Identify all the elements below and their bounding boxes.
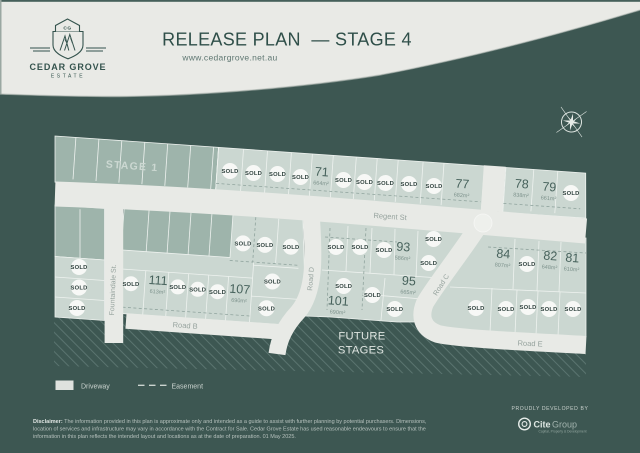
svg-text:Disclaimer: The information pr: Disclaimer: The information provided in … [33,419,427,425]
svg-text:690m²: 690m² [231,298,247,305]
svg-text:SOLD: SOLD [245,171,262,177]
svg-text:SOLD: SOLD [209,290,226,296]
svg-text:SOLD: SOLD [377,181,394,187]
svg-text:SOLD: SOLD [335,178,352,184]
svg-text:665m²: 665m² [400,289,416,296]
svg-text:95: 95 [401,274,416,289]
svg-text:SOLD: SOLD [386,307,403,313]
svg-text:STAGES: STAGES [338,345,384,357]
svg-text:Driveway: Driveway [81,384,110,391]
svg-text:82: 82 [543,249,558,264]
svg-text:SOLD: SOLD [376,248,393,254]
svg-text:93: 93 [396,240,411,255]
svg-text:807m²: 807m² [494,262,510,269]
svg-text:586m²: 586m² [394,255,410,262]
svg-text:SOLD: SOLD [122,282,139,288]
svg-text:838m²: 838m² [513,192,529,199]
svg-text:664m²: 664m² [313,180,329,187]
svg-text:SOLD: SOLD [425,237,442,243]
svg-text:CEDAR GROVE: CEDAR GROVE [30,62,107,72]
svg-text:www.cedargrove.net.au: www.cedargrove.net.au [181,53,277,63]
svg-text:SOLD: SOLD [519,262,536,268]
svg-text:SOLD: SOLD [520,305,537,311]
svg-text:SOLD: SOLD [563,191,580,197]
svg-text:PROUDLY DEVELOPED BY: PROUDLY DEVELOPED BY [512,406,589,412]
svg-text:SOLD: SOLD [328,245,345,251]
svg-text:SOLD: SOLD [565,307,582,313]
svg-text:84: 84 [496,247,511,262]
svg-text:SOLD: SOLD [169,285,186,291]
svg-text:SOLD: SOLD [420,261,437,267]
svg-text:SOLD: SOLD [269,172,286,178]
svg-text:SOLD: SOLD [426,184,443,190]
svg-text:SOLD: SOLD [541,307,558,313]
svg-text:SOLD: SOLD [264,280,281,286]
svg-text:SOLD: SOLD [222,169,239,175]
svg-text:101: 101 [327,293,349,308]
svg-text:SOLD: SOLD [401,182,418,188]
svg-text:Road B: Road B [172,320,198,331]
svg-text:SOLD: SOLD [71,265,88,271]
svg-text:SOLD: SOLD [69,306,86,312]
svg-text:RELEASE PLAN — STAGE 4: RELEASE PLAN — STAGE 4 [162,30,412,50]
svg-text:SOLD: SOLD [356,180,373,186]
svg-text:81: 81 [565,251,580,266]
svg-text:SOLD: SOLD [258,306,275,312]
svg-text:79: 79 [542,180,557,195]
svg-text:Capital, Property & Developmen: Capital, Property & Development [539,430,587,434]
svg-text:610m²: 610m² [563,266,579,273]
svg-text:Group: Group [552,419,577,429]
svg-text:SOLD: SOLD [71,286,88,292]
svg-text:SOLD: SOLD [256,243,273,249]
svg-text:111: 111 [148,273,168,288]
svg-text:SOLD: SOLD [352,245,369,251]
svg-text:Easement: Easement [172,384,204,391]
svg-text:107: 107 [229,282,251,297]
svg-text:SOLD: SOLD [468,306,485,312]
svg-text:648m²: 648m² [541,264,557,271]
svg-text:Cite: Cite [534,419,551,429]
svg-text:77: 77 [455,177,470,192]
svg-text:71: 71 [314,165,329,180]
svg-text:SOLD: SOLD [364,293,381,299]
svg-text:690m²: 690m² [329,309,345,316]
svg-text:SOLD: SOLD [189,287,206,293]
svg-text:information in this plan refle: information in this plan reflects the in… [33,434,296,440]
svg-text:613m²: 613m² [149,289,165,296]
svg-text:682m²: 682m² [453,192,469,199]
svg-text:SOLD: SOLD [235,242,252,248]
svg-text:SOLD: SOLD [335,284,352,290]
svg-text:Road E: Road E [517,338,542,348]
svg-text:SOLD: SOLD [282,245,299,251]
svg-text:location of services and infra: location of services and infrastructure … [33,426,426,432]
svg-text:ESTATE: ESTATE [51,74,85,80]
svg-text:78: 78 [514,177,529,192]
svg-text:FUTURE: FUTURE [338,331,385,343]
svg-text:SOLD: SOLD [498,307,515,313]
svg-text:SOLD: SOLD [292,175,309,181]
svg-text:661m²: 661m² [540,195,556,202]
svg-text:CG: CG [63,25,71,31]
